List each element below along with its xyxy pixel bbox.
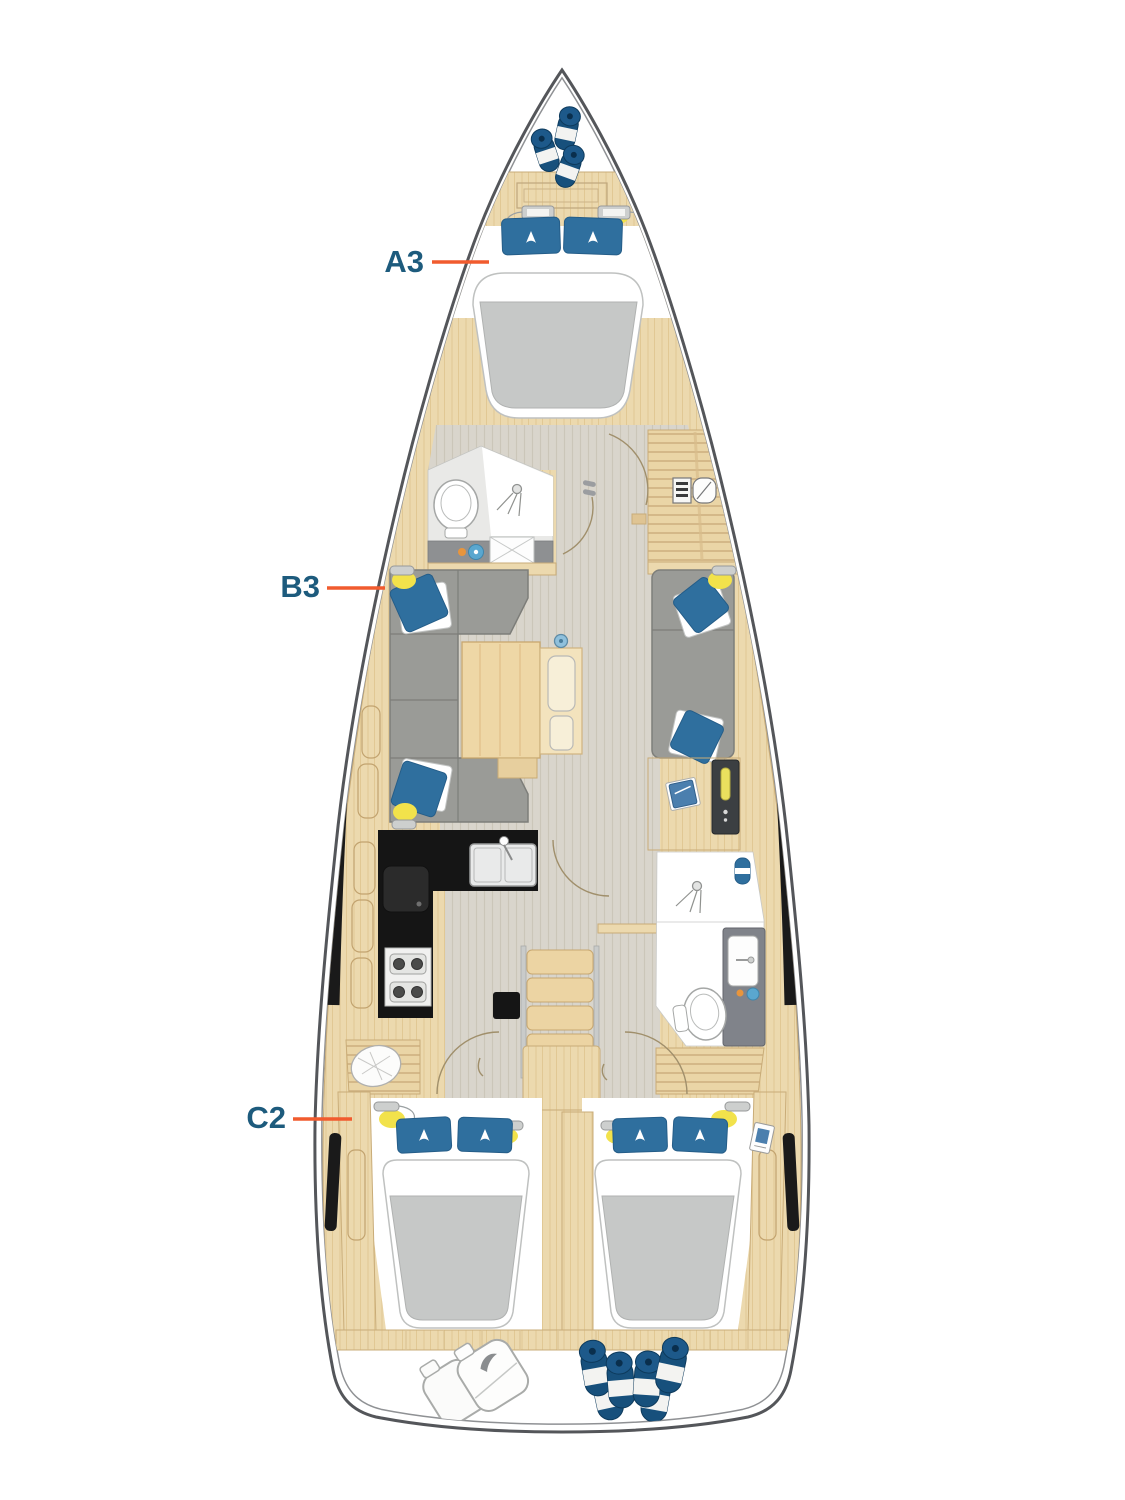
cabin-divider bbox=[562, 1112, 593, 1334]
aft-cabin-starboard bbox=[582, 1092, 786, 1332]
cabin-label-c2: C2 bbox=[246, 1100, 286, 1135]
towel-icon bbox=[735, 858, 750, 884]
pillow bbox=[457, 1117, 512, 1153]
deck-plan-svg: A3 B3 C2 bbox=[0, 0, 1125, 1500]
pillow bbox=[396, 1117, 452, 1154]
pillow bbox=[612, 1117, 667, 1153]
logbook-icon bbox=[665, 777, 700, 811]
pillow bbox=[672, 1117, 728, 1154]
mattress bbox=[390, 1196, 522, 1320]
aft-cabin-port bbox=[338, 1092, 542, 1332]
locker-icon bbox=[673, 478, 716, 503]
bulkhead bbox=[598, 924, 658, 933]
wardrobe bbox=[656, 1048, 764, 1094]
salon-table bbox=[462, 642, 540, 758]
vanity-counter bbox=[723, 928, 765, 1046]
fridge-icon bbox=[383, 866, 429, 912]
mattress bbox=[602, 1196, 734, 1320]
stove-icon bbox=[385, 948, 431, 1006]
bin-module bbox=[493, 992, 520, 1019]
yacht-layout-diagram: A3 B3 C2 bbox=[0, 0, 1125, 1500]
tap-icon bbox=[458, 548, 466, 556]
stern-bulkhead bbox=[336, 1330, 788, 1350]
sink-icon bbox=[470, 837, 536, 887]
companionway-stairs bbox=[521, 946, 600, 1110]
mattress bbox=[480, 302, 637, 408]
table-base bbox=[498, 758, 537, 778]
instrument-panel bbox=[712, 760, 739, 834]
tap-icon bbox=[737, 990, 744, 997]
pillow bbox=[501, 217, 560, 255]
pillow bbox=[563, 217, 622, 255]
cabin-label-a3: A3 bbox=[384, 244, 424, 279]
hull-locker bbox=[338, 1092, 376, 1332]
cabin-label-b3: B3 bbox=[280, 569, 320, 604]
shower-tray bbox=[490, 537, 534, 563]
light bbox=[393, 803, 417, 821]
door-jamb bbox=[632, 514, 646, 524]
